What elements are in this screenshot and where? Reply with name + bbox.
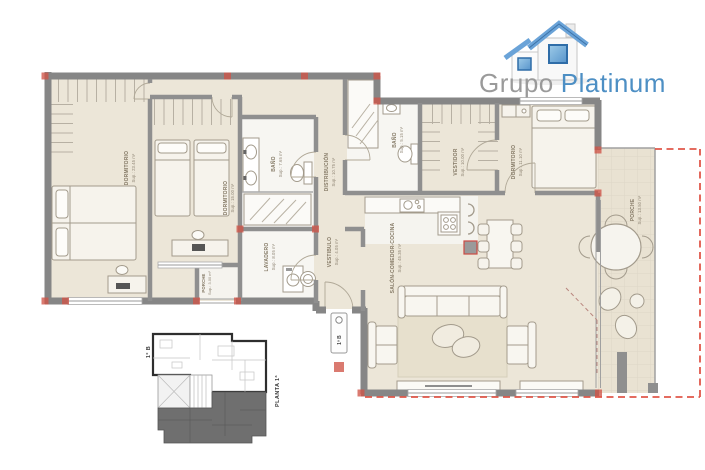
svg-text:VESTIBULO: VESTIBULO [327,237,333,267]
svg-text:PORCHE: PORCHE [630,198,636,221]
svg-text:Sup.: 45.35 m²: Sup.: 45.35 m² [397,243,402,272]
svg-text:Sup.: 4.05 m²: Sup.: 4.05 m² [334,238,339,265]
floor-plan-page: DORMITORIO Sup.: 23.45 m² DORMITORIO Sup… [0,0,705,470]
svg-text:Sup.: 11.10 m²: Sup.: 11.10 m² [518,147,523,176]
svg-text:DORMITORIO: DORMITORIO [124,151,130,185]
window-glass [549,45,567,63]
svg-text:DORMITORIO: DORMITORIO [223,181,229,215]
key-plan-floor-label: PLANTA 1ª [274,374,281,406]
svg-text:Sup.: 5.15 m²: Sup.: 5.15 m² [399,126,404,153]
double-bed-icon [52,186,136,260]
svg-text:BAÑO: BAÑO [270,156,277,172]
svg-text:VESTIDOR: VESTIDOR [453,148,459,175]
svg-text:Sup.: 7.65 m²: Sup.: 7.65 m² [278,150,283,177]
kitchen-island-icon [438,212,460,235]
kitchen-column [464,241,477,254]
svg-text:LAVADERO: LAVADERO [264,243,270,272]
dryer-icon [301,272,316,287]
sofa-icon [398,286,507,318]
room-label-distribucion: DISTRIBUCIÓN Sup.: 10.75 m² [322,153,336,192]
brand-logo: GrupoPlatinum [479,24,666,98]
svg-text:Sup.: 15.00 m²: Sup.: 15.00 m² [230,183,235,212]
svg-text:SALÓN-COMEDOR-COCINA: SALÓN-COMEDOR-COCINA [388,222,396,293]
svg-text:Sup.: 10.75 m²: Sup.: 10.75 m² [331,157,336,186]
svg-text:Sup.: 23.45 m²: Sup.: 23.45 m² [131,153,136,182]
svg-text:Sup.: 8.05 m²: Sup.: 8.05 m² [271,243,276,270]
key-plan-unit-label: 1º B [146,346,152,358]
armchair-icon [368,322,397,368]
brand-text: GrupoPlatinum [479,68,666,98]
kitchen-counter-icon [365,197,460,213]
unit-door-plaque: 1º B [331,313,347,353]
svg-text:PORCHE: PORCHE [201,273,206,292]
svg-text:Sup.: 10.00 m²: Sup.: 10.00 m² [460,147,465,176]
svg-text:DORMITORIO: DORMITORIO [511,145,517,179]
svg-text:BAÑO: BAÑO [391,132,398,148]
floor-plan-canvas: DORMITORIO Sup.: 23.45 m² DORMITORIO Sup… [0,0,705,470]
double-sink-icon [243,138,259,192]
double-bed-icon [532,106,596,188]
svg-text:DISTRIBUCIÓN: DISTRIBUCIÓN [322,153,330,192]
shower-icon [244,194,311,225]
svg-text:Sup.: 3.00 m²: Sup.: 3.00 m² [208,270,212,295]
dresser-icon [502,105,530,117]
doorbell-icon [336,317,342,323]
dining-table-icon [478,220,522,269]
svg-text:Sup.: 13.50 m²: Sup.: 13.50 m² [637,195,642,224]
key-plan: 1º B PLANTA 1ª [146,334,281,443]
key-plan-stairs [158,375,212,408]
svg-text:1º B: 1º B [337,335,343,345]
armchair-icon [507,322,536,368]
